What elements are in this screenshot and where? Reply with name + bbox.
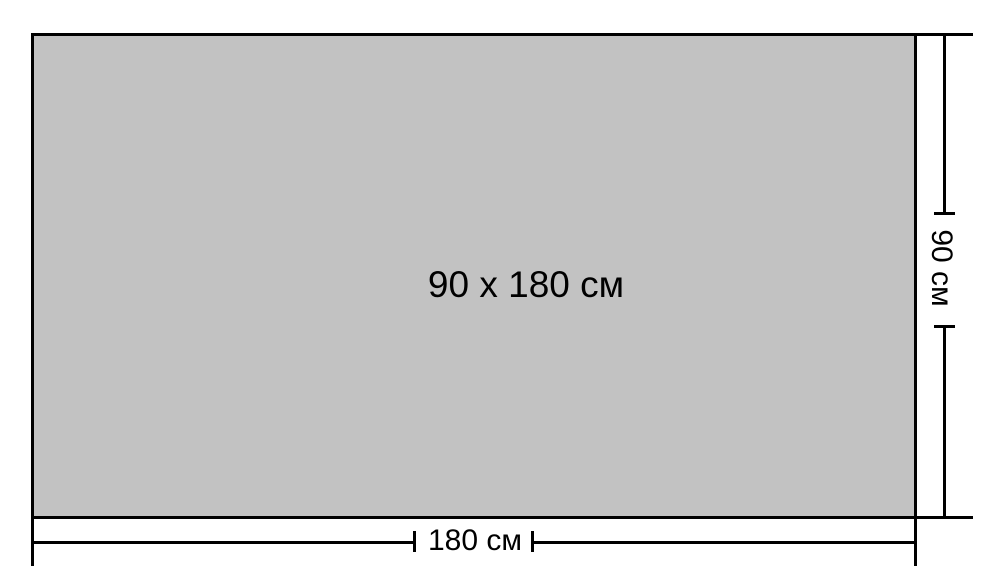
height-dimension-line-lower <box>943 327 946 517</box>
diagram-canvas: 90 х 180 см 90 см 180 см <box>0 0 1000 582</box>
height-dimension-tick-upper <box>934 212 955 215</box>
height-dimension-line-upper <box>943 34 946 214</box>
width-dimension-line-left <box>31 541 414 544</box>
width-dimension-label: 180 см <box>428 524 522 558</box>
width-dimension-line-right <box>534 541 917 544</box>
width-dimension-tick-left <box>413 531 416 552</box>
size-label: 90 х 180 см <box>428 264 624 306</box>
height-dimension-label: 90 см <box>924 229 958 306</box>
dimensioned-rectangle: 90 х 180 см <box>31 33 917 519</box>
